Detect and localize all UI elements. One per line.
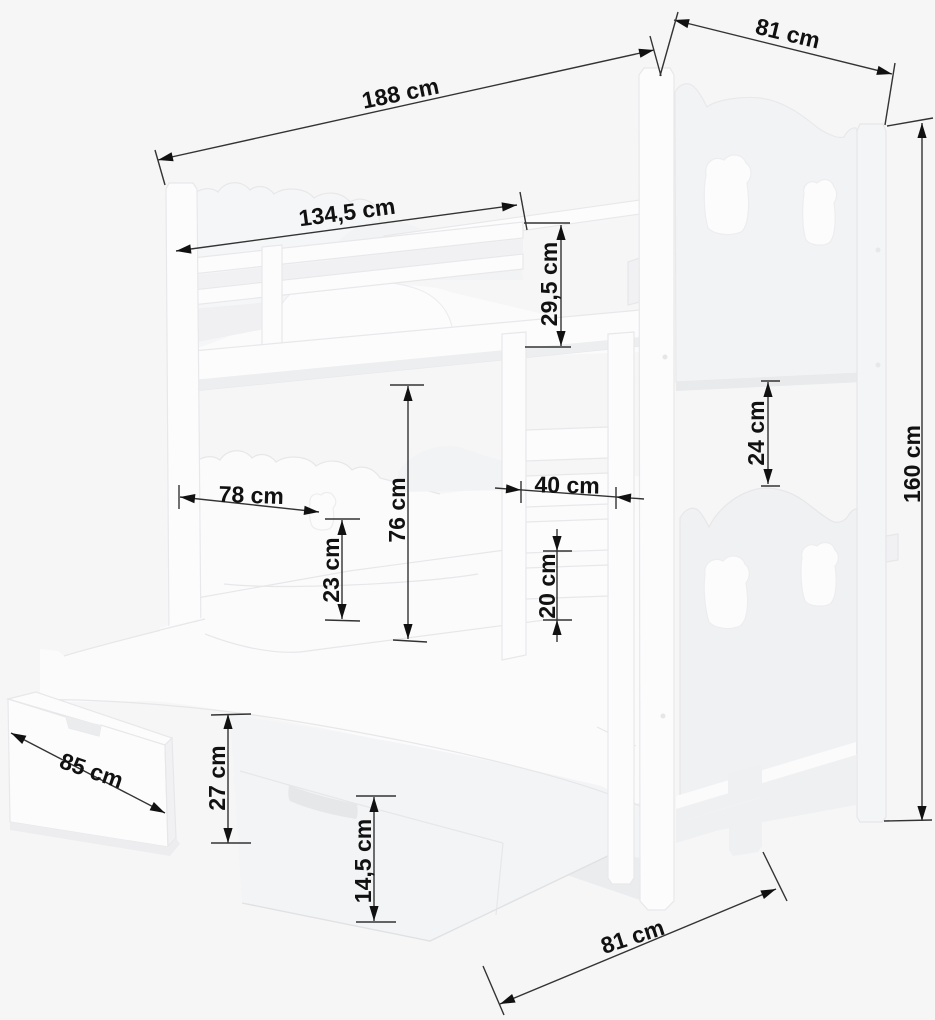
svg-text:40 cm: 40 cm	[534, 471, 600, 498]
svg-text:23 cm: 23 cm	[318, 537, 344, 602]
svg-text:29,5 cm: 29,5 cm	[536, 242, 562, 326]
svg-text:20 cm: 20 cm	[534, 553, 560, 618]
svg-text:78 cm: 78 cm	[218, 481, 284, 509]
svg-text:160 cm: 160 cm	[899, 425, 925, 503]
svg-text:27 cm: 27 cm	[204, 745, 230, 810]
svg-text:24 cm: 24 cm	[743, 400, 769, 465]
svg-text:14,5 cm: 14,5 cm	[350, 819, 376, 903]
svg-text:76 cm: 76 cm	[384, 477, 410, 542]
